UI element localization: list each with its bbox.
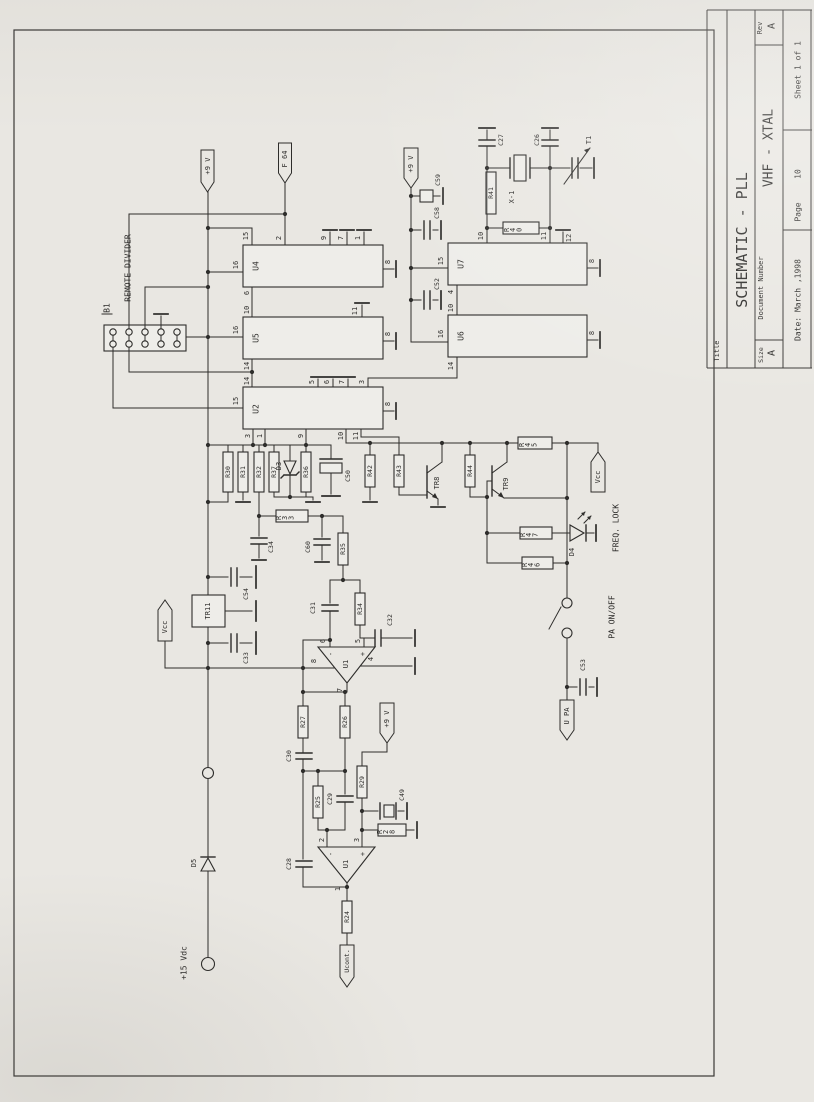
diode-d5: D5 bbox=[190, 857, 215, 871]
c59-label: C59 bbox=[434, 174, 442, 186]
r35-label: R35 bbox=[339, 543, 347, 555]
r28-label: R28 bbox=[376, 828, 396, 834]
u5-pin14: 14 bbox=[243, 362, 251, 370]
r25-label: R25 bbox=[314, 796, 322, 808]
schematic-title: SCHEMATIC - PLL bbox=[733, 172, 751, 307]
loop-filter: R33 C34 C60 R35 bbox=[251, 510, 348, 580]
c26-label: C26 bbox=[533, 134, 541, 146]
plus15-label: +15 Vdc bbox=[180, 946, 189, 980]
lock-detector: R42 R43 TR8 R44 TR9 R45 Vcc R47 R46 D4 bbox=[346, 437, 621, 740]
r41-label: R41 bbox=[487, 187, 495, 199]
r33-label: R33 bbox=[275, 514, 295, 520]
d4-label: D4 bbox=[568, 548, 576, 556]
c52-label: C52 bbox=[433, 278, 441, 290]
ucont-label: Ucont. bbox=[343, 949, 351, 972]
u4-pin15: 15 bbox=[242, 232, 250, 240]
led-d4: D4 bbox=[568, 512, 596, 556]
r29-label: R29 bbox=[358, 776, 366, 788]
flag-u-pa: U PA bbox=[560, 700, 574, 740]
u2-pin7: 7 bbox=[338, 380, 346, 384]
u1b-pin2: 2 bbox=[318, 838, 326, 842]
u2-pin6: 6 bbox=[323, 380, 331, 384]
r46-label: R46 bbox=[521, 561, 541, 567]
u1a-label: U1 bbox=[342, 660, 350, 668]
t1-label: T1 bbox=[585, 136, 593, 144]
u6-pin10: 10 bbox=[447, 304, 455, 312]
connector-b1: B1 REMOTE DIVIDER bbox=[102, 214, 285, 408]
u2-pin3: 3 bbox=[244, 434, 252, 438]
transistor-tr8: TR8 bbox=[427, 443, 445, 507]
u4-pin7: 7 bbox=[337, 236, 345, 240]
cap-c60: C60 bbox=[304, 516, 330, 562]
inline-terminal bbox=[203, 768, 214, 779]
resistor-bank: R30 R31 R32 R37 R36 D3 C50 bbox=[223, 445, 352, 516]
flag-v9-right: +9 V bbox=[404, 148, 418, 188]
document-number-label: Document Number bbox=[757, 256, 765, 319]
u4-pin1: 1 bbox=[354, 236, 362, 240]
tr8-label: TR8 bbox=[433, 477, 441, 490]
u2-pin10: 10 bbox=[337, 432, 345, 440]
v9-right-label: +9 V bbox=[407, 155, 415, 173]
cap-c33: C33 bbox=[208, 632, 256, 664]
size-value: A bbox=[767, 350, 778, 356]
vcc-right-label: Vcc bbox=[594, 471, 602, 484]
r43-label: R43 bbox=[395, 465, 403, 477]
u1a-pin8: 8 bbox=[310, 659, 318, 663]
u1a-pin7: 7 bbox=[336, 688, 344, 692]
title-block: Title SCHEMATIC - PLL Size A Document Nu… bbox=[707, 10, 812, 368]
drawing-border bbox=[14, 30, 714, 1076]
c33-label: C33 bbox=[242, 652, 250, 664]
r42-label: R42 bbox=[366, 465, 374, 477]
c31-label: C31 bbox=[309, 602, 317, 614]
r47-label: R47 bbox=[519, 531, 539, 537]
u7-pin11: 11 bbox=[540, 232, 548, 240]
cap-c27: C27 bbox=[479, 128, 505, 172]
r36-label: R36 bbox=[302, 466, 310, 478]
vcc-left-label: Vcc bbox=[161, 621, 169, 634]
r40-label: R40 bbox=[503, 226, 523, 232]
pa-switch: PA ON/OFF bbox=[549, 595, 617, 639]
u2-pin3-top: 3 bbox=[358, 380, 366, 384]
opamp-u1a: C31 R34 C32 U1 6 5 - + 8 4 7 bbox=[303, 580, 415, 706]
u7-pin8: 8 bbox=[588, 259, 596, 263]
r31-label: R31 bbox=[239, 466, 247, 478]
c58-label: C58 bbox=[433, 207, 441, 219]
u7-pin10: 10 bbox=[477, 232, 485, 240]
trimmer-t1: T1 bbox=[546, 136, 594, 184]
u4-pin6: 6 bbox=[243, 291, 251, 295]
u7-pin4: 4 bbox=[447, 290, 455, 294]
r32-label: R32 bbox=[255, 466, 263, 478]
d3-label: D3 bbox=[275, 462, 283, 470]
u4-pin2: 2 bbox=[275, 236, 283, 240]
rev-label: Rev bbox=[756, 22, 764, 35]
divider-ics: +9 V C59 C58 C52 U7 15 10 11 12 4 8 U6 1… bbox=[404, 148, 600, 378]
r24-label: R24 bbox=[343, 911, 351, 923]
u2-pin15: 15 bbox=[232, 397, 240, 405]
c54-label: C54 bbox=[242, 588, 250, 600]
page-value: 10 bbox=[794, 169, 803, 179]
cap-c53: C53 bbox=[567, 659, 597, 696]
flag-vcc-right: Vcc bbox=[591, 452, 605, 492]
freq-lock-label: FREQ. LOCK bbox=[612, 504, 621, 552]
sheet-value: Sheet 1 of 1 bbox=[794, 41, 803, 99]
transistor-tr9: TR9 bbox=[487, 443, 567, 563]
c53-label: C53 bbox=[579, 659, 587, 671]
cap-c52: C52 bbox=[411, 278, 441, 309]
r34-label: R34 bbox=[356, 603, 364, 615]
c30-label: C30 bbox=[285, 750, 293, 762]
cap-c34: C34 bbox=[251, 516, 275, 560]
c49-label: C49 bbox=[398, 789, 406, 801]
u1b-minus: - bbox=[327, 852, 335, 856]
u5-pin11: 11 bbox=[351, 307, 359, 315]
c28-label: C28 bbox=[285, 858, 293, 870]
u1a-pin4: 4 bbox=[367, 657, 375, 661]
c50-label: C50 bbox=[344, 470, 352, 482]
cap-c50: C50 bbox=[320, 445, 352, 496]
u4-pin16: 16 bbox=[232, 261, 240, 269]
u2-pin5: 5 bbox=[308, 380, 316, 384]
cap-c49: C49 bbox=[362, 789, 407, 819]
v9-top-label: +9 V bbox=[204, 157, 212, 175]
c27-label: C27 bbox=[497, 134, 505, 146]
c34-label: C34 bbox=[267, 541, 275, 553]
u2-pin1: 1 bbox=[256, 434, 264, 438]
u1a-pin6: 6 bbox=[319, 639, 327, 643]
title-label: Title bbox=[713, 340, 721, 361]
opamp-u1b-section: R27 R26 C30 R25 C29 C28 +9 V R29 C49 R28… bbox=[285, 703, 417, 987]
r45-label: R45 bbox=[518, 441, 538, 447]
cap-c59: C59 bbox=[411, 174, 443, 204]
u1b-pin3: 3 bbox=[353, 838, 361, 842]
ic-u5: U5 16 11 8 14 bbox=[232, 303, 396, 387]
u7-pin15: 15 bbox=[437, 257, 445, 265]
ic-u2: U2 14 15 5 6 7 3 3 1 9 10 11 8 bbox=[232, 377, 457, 445]
u1a-pin5: 5 bbox=[354, 639, 362, 643]
r27-label: R27 bbox=[299, 716, 307, 728]
schematic-canvas: Title SCHEMATIC - PLL Size A Document Nu… bbox=[0, 0, 814, 1102]
r30-label: R30 bbox=[224, 466, 232, 478]
c32-label: C32 bbox=[386, 614, 394, 626]
tr11-label: TR11 bbox=[204, 603, 212, 620]
document-number: VHF - XTAL bbox=[762, 109, 777, 187]
u5-label: U5 bbox=[252, 333, 261, 343]
b1-label: B1 bbox=[103, 303, 112, 313]
u5-pin16: 16 bbox=[232, 326, 240, 334]
u1a-plus: + bbox=[359, 652, 367, 656]
page-label: Page bbox=[794, 202, 803, 221]
size-label: Size bbox=[757, 347, 765, 363]
u4-pin9: 9 bbox=[320, 236, 328, 240]
u6-pin14: 14 bbox=[447, 362, 455, 370]
u1b-label: U1 bbox=[342, 860, 350, 868]
u-pa-label: U PA bbox=[563, 707, 571, 725]
v9-mid-label: +9 V bbox=[383, 710, 391, 728]
pa-onoff-label: PA ON/OFF bbox=[608, 595, 617, 639]
flag-v9-top: +9 V bbox=[201, 150, 214, 192]
u7-pin12: 12 bbox=[565, 234, 573, 242]
x1-label: X-1 bbox=[508, 191, 516, 204]
date-value: Date: March ,1998 bbox=[794, 259, 803, 341]
u5-pin10: 10 bbox=[243, 306, 251, 314]
rev-value: A bbox=[767, 23, 778, 29]
d5-label: D5 bbox=[190, 859, 198, 867]
u6-label: U6 bbox=[457, 331, 466, 341]
u1b-plus: + bbox=[359, 852, 367, 856]
u7-label: U7 bbox=[457, 259, 466, 269]
u2-pin14: 14 bbox=[243, 377, 251, 385]
tr9-label: TR9 bbox=[502, 478, 510, 491]
flag-f64: F 64 bbox=[279, 143, 292, 245]
c60-label: C60 bbox=[304, 541, 312, 553]
u1a-minus: - bbox=[327, 652, 335, 656]
u2-pin11: 11 bbox=[352, 432, 360, 440]
regulator-section: C54 TR11 C33 Vcc bbox=[158, 566, 303, 668]
flag-ucont: Ucont. bbox=[340, 945, 354, 987]
u2-pin9: 9 bbox=[297, 434, 305, 438]
cap-c26: C26 bbox=[533, 128, 558, 168]
u2-pin8: 8 bbox=[384, 402, 392, 406]
u6-pin8: 8 bbox=[588, 331, 596, 335]
ic-u4: U4 15 2 9 7 1 16 6 8 10 bbox=[232, 230, 396, 317]
u5-pin8: 8 bbox=[384, 332, 392, 336]
flag-v9-mid: +9 V bbox=[362, 703, 394, 766]
u4-label: U4 bbox=[252, 261, 261, 271]
crystal-oscillator: C27 X-1 C26 T1 R41 R40 bbox=[479, 128, 594, 234]
r44-label: R44 bbox=[466, 465, 474, 477]
u1b-pin1: 1 bbox=[334, 887, 342, 891]
u6-pin16: 16 bbox=[437, 330, 445, 338]
scanned-schematic-page: Title SCHEMATIC - PLL Size A Document Nu… bbox=[0, 0, 814, 1102]
cap-c58: C58 bbox=[411, 207, 441, 239]
remote-divider-label: REMOTE DIVIDER bbox=[124, 234, 133, 302]
c29-label: C29 bbox=[326, 793, 334, 805]
f64-label: F 64 bbox=[281, 151, 289, 168]
plus15-terminal bbox=[202, 958, 215, 971]
r26-label: R26 bbox=[341, 716, 349, 728]
u4-pin8: 8 bbox=[384, 260, 392, 264]
u2-label: U2 bbox=[252, 404, 261, 414]
